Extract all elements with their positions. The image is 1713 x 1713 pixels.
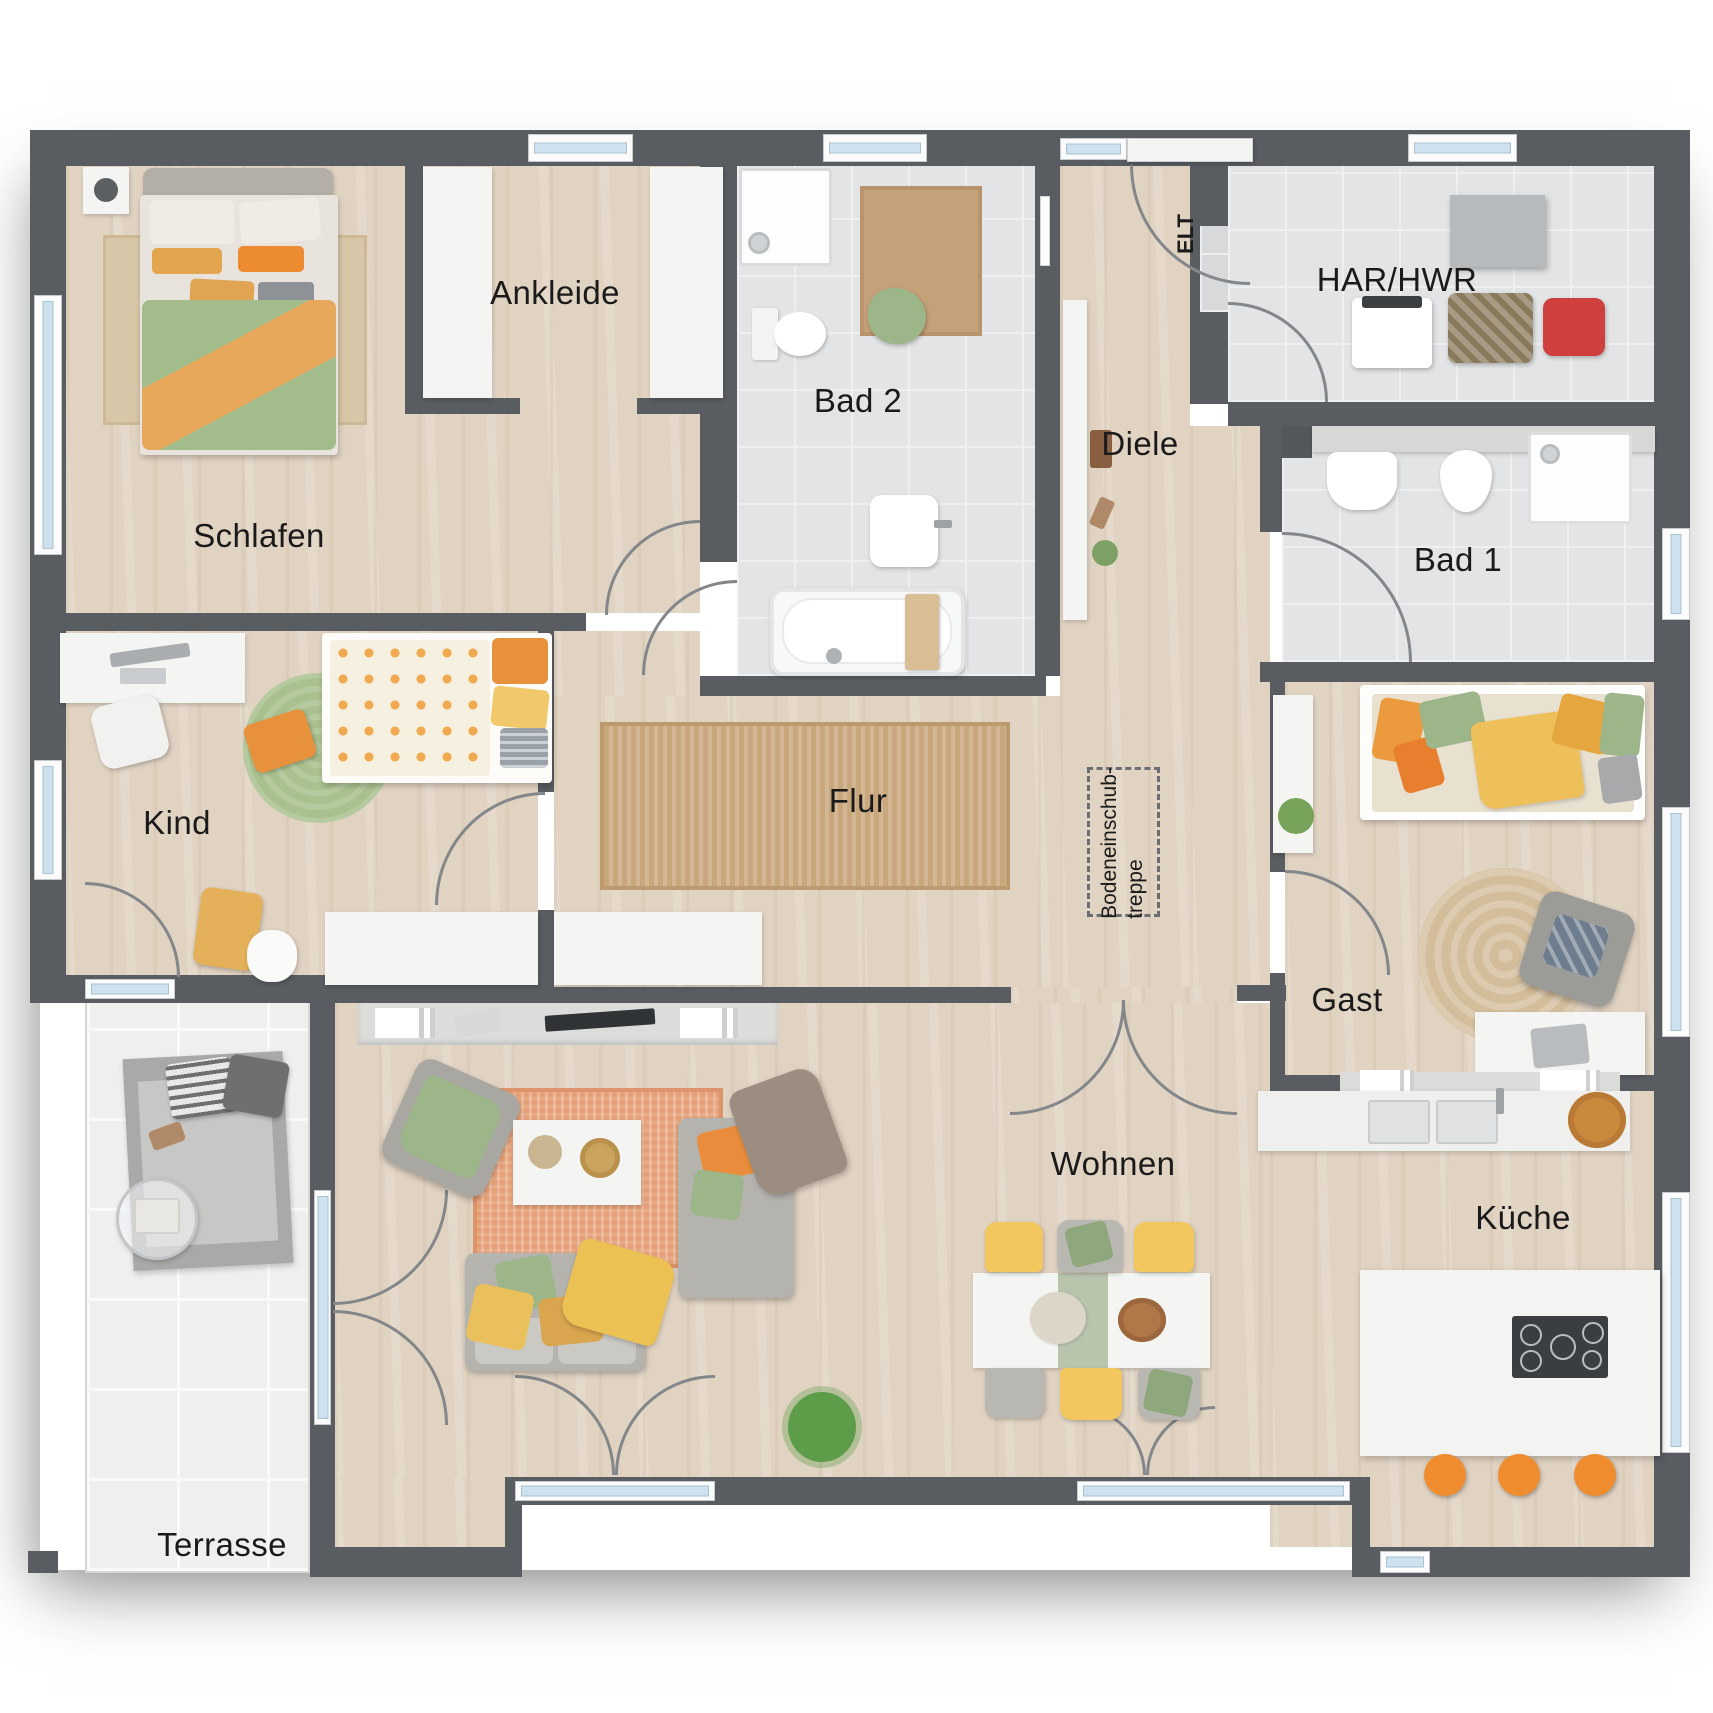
kind-duvet [330, 640, 490, 776]
gast-label: Gast [1311, 981, 1382, 1019]
schlafen-label: Schlafen [193, 517, 325, 555]
wohnen-books-3 [680, 1008, 738, 1038]
kueche-sink-right [1436, 1100, 1498, 1144]
window-gast [1662, 807, 1690, 1037]
kueche-faucet [1496, 1088, 1504, 1114]
wall-ankleide-left-bottom [405, 398, 520, 414]
attic-line2: treppe [1124, 859, 1147, 919]
terrasse-label: Terrasse [157, 1526, 287, 1564]
kueche-stool-3 [1574, 1454, 1616, 1496]
burner-2 [1520, 1350, 1542, 1372]
wohnen-nook-floor [335, 1477, 505, 1547]
bad2-shower-drain [748, 232, 770, 254]
kueche-fruit-bowl [1568, 1092, 1626, 1148]
wohnen-label: Wohnen [1051, 1145, 1176, 1183]
har-washing-machine [1352, 298, 1432, 368]
burner-1 [1520, 1324, 1542, 1346]
har-hwr-label: HAR/HWR [1317, 261, 1477, 299]
bad1-duct [1282, 426, 1312, 458]
bad2-towel [868, 288, 926, 344]
kueche-sink-left [1368, 1100, 1430, 1144]
window-schlafen [34, 295, 62, 555]
wall-gast-west-lower [1270, 973, 1285, 1077]
schlafen-pillow-orange [238, 246, 304, 272]
wohnen-table-plant [528, 1135, 562, 1169]
kueche-stool-1 [1424, 1454, 1466, 1496]
bad1-shower-drain [1540, 444, 1560, 464]
bad2-sink-faucet [934, 520, 952, 528]
window-kind [34, 760, 62, 880]
window-kueche-south [1380, 1551, 1430, 1573]
terrasse-tray [134, 1198, 180, 1234]
gast-pillow-green-2 [1599, 692, 1645, 758]
ankleide-wardrobe-left [423, 167, 492, 398]
wohnen-table-bowl [580, 1138, 620, 1178]
elt-label: ELT [1173, 214, 1199, 254]
gast-plant [1278, 798, 1314, 834]
door-kind-terrasse [85, 979, 175, 999]
dining-bowl [1118, 1298, 1166, 1342]
flur-label: Flur [829, 782, 887, 820]
flur-sideboard [554, 912, 762, 985]
burner-5 [1582, 1350, 1602, 1370]
kind-keyboard [120, 668, 166, 684]
terrasse-pillow-dark [222, 1053, 291, 1119]
floor-plan: Schlafen Ankleide Bad 2 Diele ELT HAR/HW… [0, 0, 1713, 1713]
dining-chair-3 [1134, 1222, 1194, 1272]
flur-rug [600, 722, 1010, 890]
dining-chair-5 [1060, 1368, 1122, 1420]
diele-coat-rack [1040, 196, 1050, 266]
schlafen-duvet [142, 300, 336, 450]
kind-label: Kind [143, 804, 211, 842]
attic-stairs-label: Bodeneinschub-treppe [1097, 767, 1149, 919]
har-red-basket [1543, 298, 1605, 356]
bad2-sink [870, 495, 938, 567]
wall-south-west-block [310, 1547, 522, 1577]
wall-south-west-jog [505, 1505, 522, 1577]
wall-schlafen-ankleide [405, 160, 423, 414]
wall-schlafen-kind [30, 613, 586, 631]
wall-har-bad1 [1228, 402, 1655, 426]
kueche-stool-2 [1498, 1454, 1540, 1496]
kind-pillow-yellow [490, 685, 550, 731]
har-heating-unit [1450, 195, 1545, 267]
schlafen-side-table-lamp [94, 178, 118, 202]
kueche-label: Küche [1475, 1199, 1571, 1237]
wall-bad1-west [1260, 426, 1282, 532]
kueche-cooktop [1512, 1316, 1608, 1378]
bad1-label: Bad 1 [1414, 541, 1502, 579]
schlafen-pillow-yellow-1 [152, 248, 222, 274]
diele-plant [1092, 540, 1118, 566]
window-kueche [1662, 1192, 1690, 1453]
diele-label: Diele [1101, 425, 1178, 463]
dining-chair-4 [985, 1368, 1045, 1418]
window-bad1 [1662, 528, 1690, 620]
har-laundry-basket [1448, 293, 1533, 363]
window-entry-sidelight [1060, 138, 1127, 160]
attic-line1: Bodeneinschub- [1098, 767, 1121, 919]
wohnen-plant [788, 1392, 856, 1462]
door-wohnen-terrasse-west [314, 1190, 331, 1425]
ankleide-wardrobe-right [650, 167, 723, 398]
ankleide-label: Ankleide [490, 274, 620, 312]
door-essen-terrasse-south [1077, 1481, 1350, 1501]
bad2-label: Bad 2 [814, 382, 902, 420]
bad2-bath-caddy [905, 594, 939, 670]
kueche-island [1360, 1270, 1660, 1456]
burner-3 [1550, 1334, 1576, 1360]
window-ankleide [528, 134, 633, 162]
flur-east-floor [1190, 426, 1270, 987]
window-bad2 [823, 134, 927, 162]
kind-pillow-orange [492, 638, 548, 684]
bad2-bath-faucet [826, 648, 842, 664]
wohnen-pillow-yellow-1 [465, 1282, 536, 1351]
dining-chair-6-napkin [1142, 1368, 1194, 1418]
burner-4 [1582, 1322, 1604, 1344]
wall-bad1-gast [1260, 662, 1655, 682]
kind-play-table [247, 930, 297, 982]
schlafen-duvet-throw [142, 300, 336, 450]
gast-laptop [1530, 1023, 1590, 1069]
dining-chair-1 [985, 1222, 1043, 1272]
diele-sideboard [1063, 300, 1087, 620]
bad1-sink [1327, 452, 1397, 510]
window-har-hwr [1408, 134, 1517, 162]
schlafen-pillow-2 [239, 197, 322, 244]
kind-pillow-striped [500, 728, 548, 768]
entry-door-leaf [1127, 138, 1253, 162]
dining-flowers [1030, 1292, 1086, 1344]
terrasse-corner-post [28, 1551, 58, 1573]
door-wohnen-terrasse-south [515, 1481, 715, 1501]
schlafen-pillow-1 [150, 200, 234, 244]
wall-flur-wohnen [552, 987, 1011, 1003]
wohnen-books-1 [375, 1008, 435, 1038]
wohnen-pillow-green-2 [689, 1169, 745, 1222]
gast-pillow-gray [1597, 753, 1643, 804]
kind-sideboard [325, 912, 538, 985]
bad2-toilet-bowl [774, 312, 826, 356]
wall-bad2-south [700, 676, 1046, 696]
